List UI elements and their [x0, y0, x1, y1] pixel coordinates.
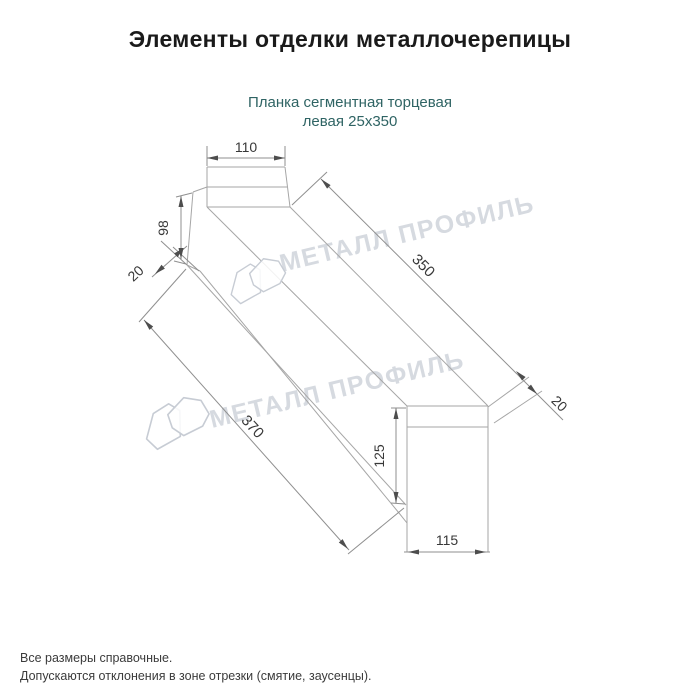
- dim-length-top: 350: [408, 251, 438, 281]
- dim-left-fold: 20: [124, 262, 146, 284]
- metall-profil-cloud-logo: [139, 393, 214, 452]
- technical-drawing: МЕТАЛЛ ПРОФИЛЬ МЕТАЛЛ ПРОФИЛЬ: [0, 0, 700, 700]
- dim-top-width: 110: [235, 139, 258, 155]
- footer-notes: Все размеры справочные. Допускаются откл…: [20, 649, 372, 685]
- footer-note-2: Допускаются отклонения в зоне отрезки (с…: [20, 667, 372, 685]
- dim-end-width: 115: [436, 532, 459, 548]
- dim-end-height: 125: [371, 444, 387, 468]
- dim-right-fold: 20: [548, 392, 570, 414]
- watermark-layer: МЕТАЛЛ ПРОФИЛЬ МЕТАЛЛ ПРОФИЛЬ: [207, 190, 537, 434]
- footer-note-1: Все размеры справочные.: [20, 649, 372, 667]
- page: Элементы отделки металлочерепицы Планка …: [0, 0, 700, 700]
- dim-left-height: 98: [155, 220, 171, 236]
